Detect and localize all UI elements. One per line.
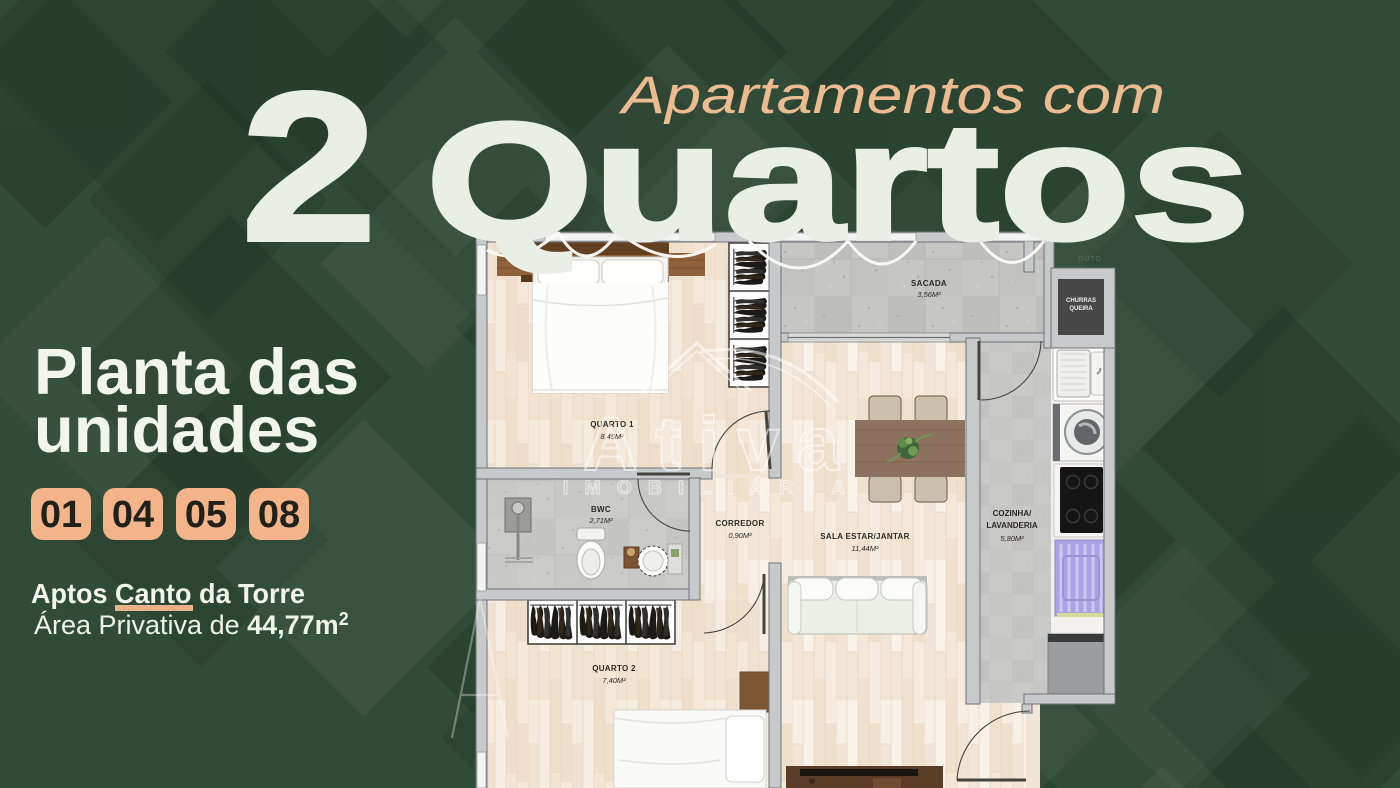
svg-text:5,80M²: 5,80M² [1000,534,1024,543]
svg-text:Ativa: Ativa [583,402,840,487]
svg-text:08: 08 [258,494,300,536]
svg-text:SACADA: SACADA [911,279,947,288]
svg-text:SALA ESTAR/JANTAR: SALA ESTAR/JANTAR [820,532,909,541]
svg-text:LAVANDERIA: LAVANDERIA [986,521,1037,530]
svg-text:BWC: BWC [591,505,611,514]
svg-text:05: 05 [185,494,227,536]
svg-text:CHURRAS: CHURRAS [1066,298,1096,304]
svg-text:Quartos: Quartos [426,89,1250,275]
svg-text:unidades: unidades [34,393,319,466]
svg-text:CORREDOR: CORREDOR [715,519,764,528]
svg-text:04: 04 [112,494,154,536]
svg-text:0,90M²: 0,90M² [728,531,752,540]
svg-text:3,56M²: 3,56M² [917,290,941,299]
svg-text:Área Privativa de 44,77m2: Área Privativa de 44,77m2 [34,609,349,640]
svg-text:11,44M²: 11,44M² [852,544,879,553]
svg-text:Aptos Canto da Torre: Aptos Canto da Torre [31,578,305,609]
svg-text:QUEIRA: QUEIRA [1069,306,1093,312]
svg-text:2,71M²: 2,71M² [588,516,613,525]
svg-text:2: 2 [241,48,377,285]
svg-text:7,40M²: 7,40M² [602,676,626,685]
svg-text:COZINHA/: COZINHA/ [993,509,1032,518]
svg-text:QUARTO 2: QUARTO 2 [592,664,636,673]
svg-text:01: 01 [40,494,82,536]
